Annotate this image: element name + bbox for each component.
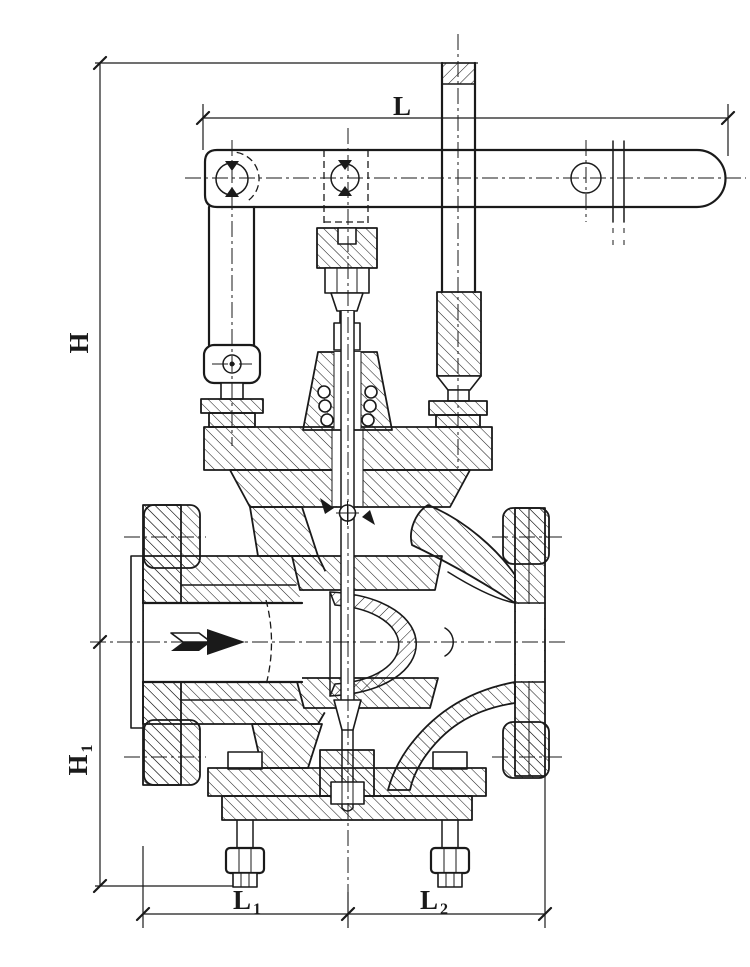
dim-label-L1: L1 [217,885,277,925]
bottom-bolt-right [431,820,469,887]
lever-arm [205,141,726,245]
dim-label-H1: H1 [63,732,103,788]
bottom-flange [208,750,486,887]
valve-section-linework [0,0,750,967]
bottom-bolt-left [226,820,264,887]
valve-technical-drawing: L H H1 L1 L2 [0,0,750,967]
dim-label-H: H [64,322,104,362]
dim-label-L2: L2 [404,885,464,925]
dim-label-L: L [373,91,433,131]
